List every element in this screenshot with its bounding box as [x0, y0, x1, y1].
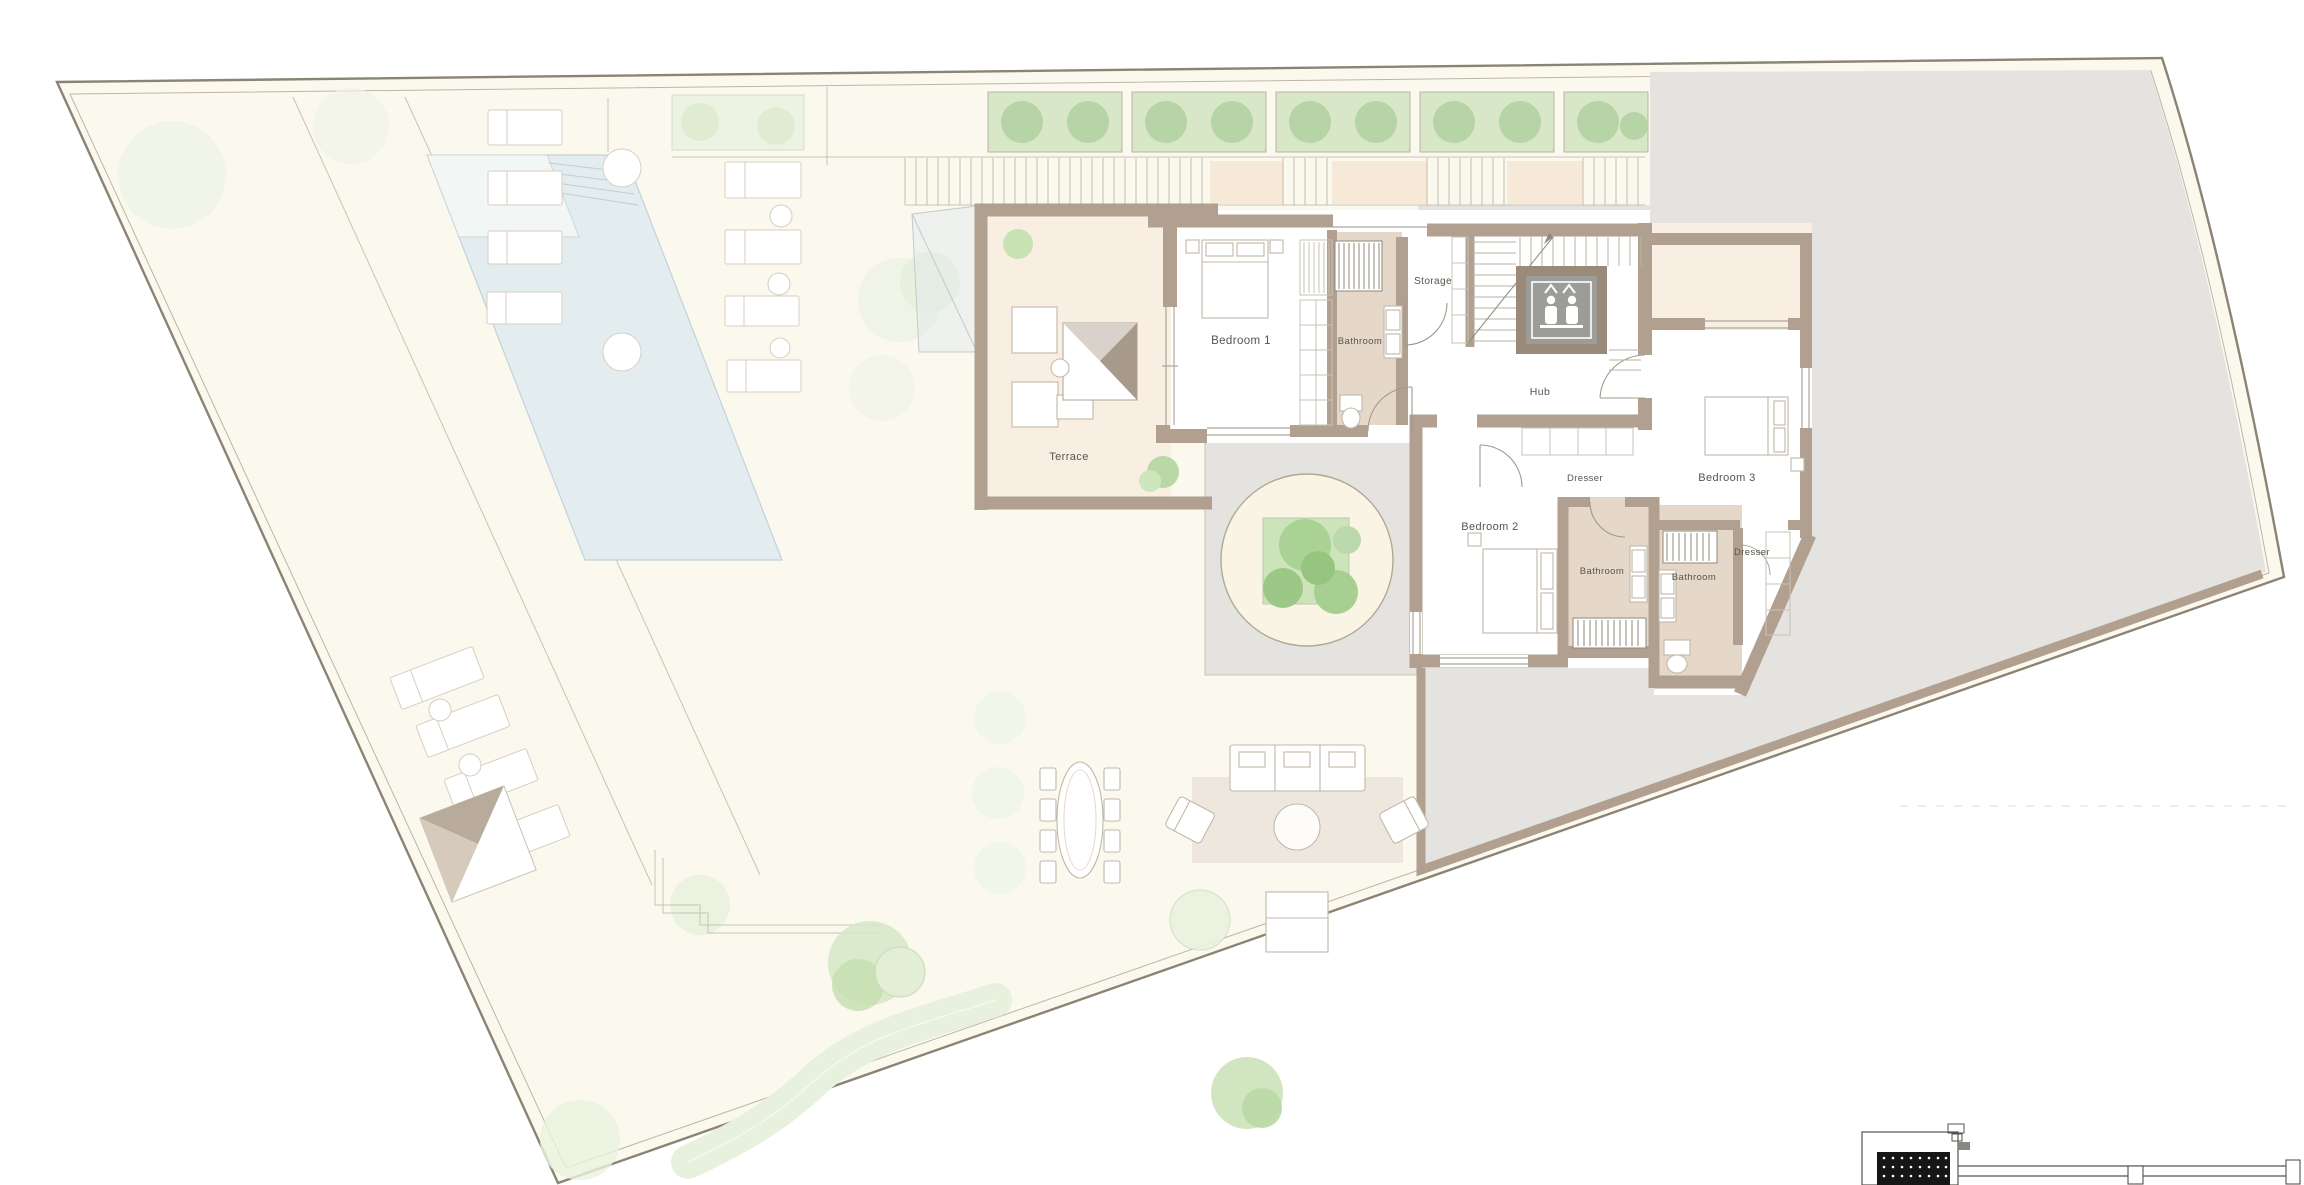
villa-site-plan: Bedroom 1 Bathroom Storage Hub Dresser B… [0, 0, 2304, 1185]
room-label-terrace: Terrace [1049, 451, 1088, 463]
courtyard-planter [1221, 474, 1393, 646]
lounge-daybed [1266, 892, 1328, 952]
elevator-icon [1516, 266, 1607, 354]
room-label-bedroom-3: Bedroom 3 [1698, 472, 1755, 484]
room-label-bedroom-1: Bedroom 1 [1211, 335, 1271, 347]
room-label-bathroom-2: Bathroom [1580, 566, 1624, 577]
site-plan-page: Bedroom 1 Bathroom Storage Hub Dresser B… [0, 0, 2304, 1185]
glass-canopy [912, 206, 977, 352]
room-label-dresser-1: Dresser [1567, 473, 1603, 484]
room-label-dresser-2: Dresser [1734, 547, 1770, 558]
coffee-table [1274, 804, 1320, 850]
room-label-bedroom-2: Bedroom 2 [1461, 521, 1518, 533]
room-label-hub: Hub [1530, 386, 1550, 398]
room-label-storage: Storage [1414, 276, 1452, 287]
room-label-bathroom-3: Bathroom [1672, 572, 1716, 583]
room-label-bathroom-1: Bathroom [1338, 336, 1382, 347]
lounge-sofa [1230, 745, 1365, 791]
terrace-umbrella [1051, 323, 1137, 400]
key-plan [1862, 806, 2300, 1185]
